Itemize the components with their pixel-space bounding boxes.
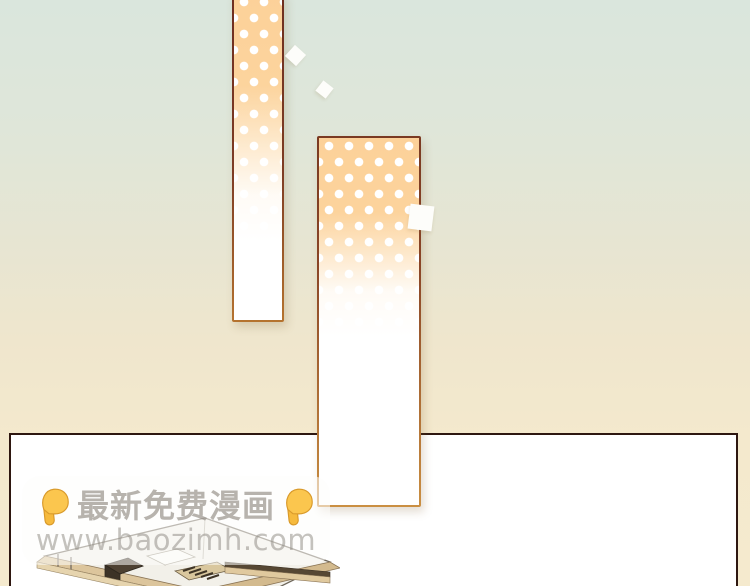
confetti-square xyxy=(285,45,306,66)
dotted-panel-small xyxy=(232,0,284,322)
confetti-square xyxy=(408,204,435,232)
dotted-panel-large xyxy=(317,136,421,507)
watermark-title: 最新免费漫画 xyxy=(77,490,275,522)
site-watermark: 最新免费漫画 www.baozimh.com xyxy=(22,476,330,565)
confetti-square xyxy=(315,80,333,98)
pointing-down-finger-icon xyxy=(279,484,317,527)
dotted-panel-small-fill xyxy=(234,0,282,320)
pointing-down-finger-icon xyxy=(35,484,73,527)
watermark-url: www.baozimh.com xyxy=(36,526,316,555)
watermark-title-row: 最新免费漫画 xyxy=(37,486,315,526)
dotted-panel-large-fill xyxy=(319,138,419,505)
comic-page: 最新免费漫画 www.baozimh.com xyxy=(0,0,750,586)
